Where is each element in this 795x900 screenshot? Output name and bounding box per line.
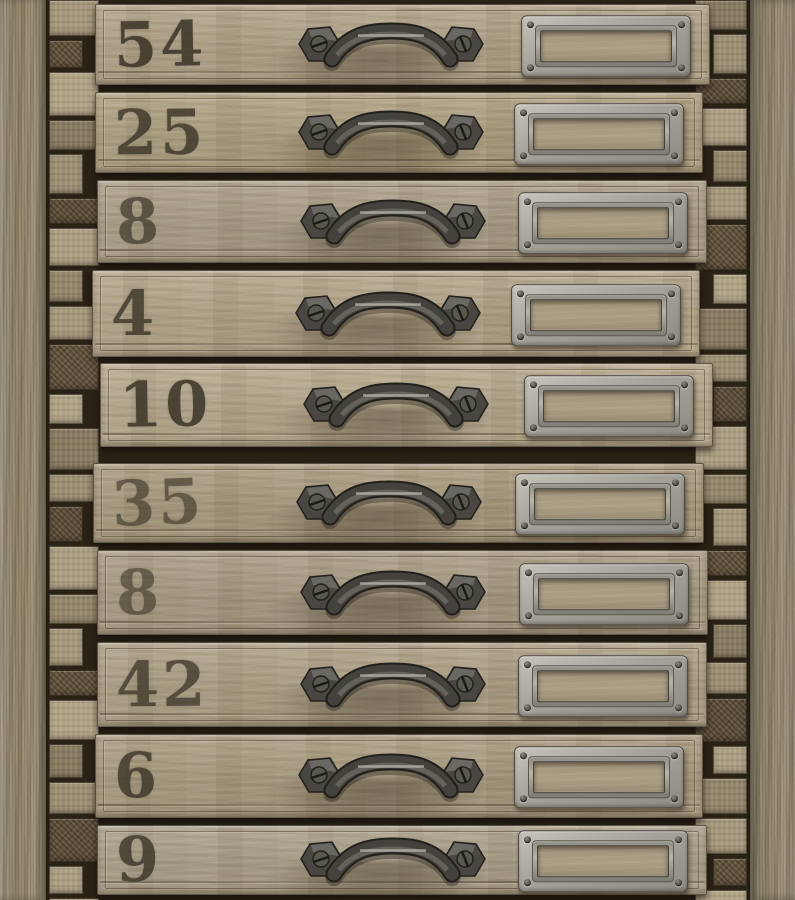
rivet-icon [681,381,688,388]
joint-block [713,150,747,182]
joint-block [49,40,83,68]
cabinet-frame-right [747,0,795,900]
rivet-icon [671,752,678,759]
joint-block [49,866,83,894]
dovetail-joints-left [49,0,99,900]
rivet-icon [524,198,531,205]
label-card-window [537,207,669,239]
joint-block [49,154,83,194]
rivet-icon [676,569,683,576]
joint-block [49,628,83,666]
joint-block [49,474,99,502]
label-holder-ridge [532,840,674,882]
drawer-front: 10 [100,363,713,447]
drawer-number: 25 [114,101,207,164]
drawer-pull-handle-icon [296,106,486,160]
joint-block [695,308,747,350]
rivet-icon [525,612,532,619]
rivet-icon [678,64,685,71]
label-card-window [540,30,672,62]
rivet-icon [521,479,528,486]
label-holder [518,192,688,254]
joint-block [49,744,83,778]
drawer-front: 54 [95,4,710,85]
drawer-front: 9 [97,825,707,895]
drawer-number: 10 [118,373,211,437]
label-card-window [537,845,669,877]
rivet-icon [672,479,679,486]
drawer-front: 6 [95,734,703,818]
label-card-window [538,578,670,610]
joint-block [49,428,99,470]
drawer-number: 6 [114,745,160,807]
rivet-icon [676,612,683,619]
rivet-icon [675,661,682,668]
rivet-icon [678,21,685,28]
drawer-front: 25 [95,92,703,173]
rivet-icon [530,424,537,431]
label-holder [515,473,685,535]
joint-block [49,546,99,590]
drawer-front: 4 [92,270,700,357]
rivet-icon [668,333,675,340]
drawer-pull-handle-icon [298,658,488,712]
rivet-icon [524,836,531,843]
rivet-icon [524,241,531,248]
joint-block [49,72,99,116]
joint-block [49,270,83,302]
joint-block [49,782,99,814]
drawer-pull-handle-icon [293,287,483,341]
label-holder [519,563,689,625]
drawer-number: 54 [113,13,206,77]
cabinet-frame-left [0,0,49,900]
rivet-icon [520,152,527,159]
rivet-icon [527,64,534,71]
label-card-window [533,118,665,150]
label-card-window [530,299,662,331]
drawer-number: 4 [111,283,157,345]
rivet-icon [527,21,534,28]
rivet-icon [520,109,527,116]
drawer-front: 8 [97,180,707,263]
rivet-icon [675,241,682,248]
rivet-icon [520,795,527,802]
rivet-icon [520,752,527,759]
rivet-icon [524,704,531,711]
label-holder [518,830,688,892]
rivet-icon [530,381,537,388]
rivet-icon [524,879,531,886]
joint-block [49,394,83,424]
label-card-window [543,390,675,422]
rivet-icon [668,290,675,297]
rivet-icon [517,290,524,297]
label-holder-ridge [528,756,670,798]
rivet-icon [671,152,678,159]
drawer-pull-handle-icon [296,18,486,72]
label-holder [524,375,694,437]
cabinet-photo: 54 [0,0,795,900]
label-card-window [533,761,665,793]
label-holder-ridge [529,483,671,525]
label-holder [521,15,691,77]
label-holder-ridge [535,25,677,67]
label-holder [514,103,684,165]
joint-block [49,0,99,36]
rivet-icon [525,569,532,576]
label-holder [518,655,688,717]
label-card-window [537,670,669,702]
label-holder [514,746,684,808]
rivet-icon [671,109,678,116]
rivet-icon [681,424,688,431]
joint-block [713,34,747,74]
rivet-icon [671,795,678,802]
rivet-icon [672,522,679,529]
label-holder-ridge [538,385,680,427]
drawer-number: 35 [111,470,205,535]
joint-block [49,198,99,224]
joint-block [713,624,747,658]
label-holder-ridge [525,294,667,336]
label-holder [511,284,681,346]
drawer-pull-handle-icon [298,833,488,887]
rivet-icon [524,661,531,668]
drawer-pull-handle-icon [294,476,484,530]
joint-block [49,670,99,696]
rivet-icon [517,333,524,340]
joint-block [713,386,747,422]
label-holder-ridge [528,113,670,155]
drawer-number: 9 [115,829,162,892]
label-holder-ridge [533,573,675,615]
joint-block [49,700,99,740]
joint-block [713,858,747,886]
drawer-pull-handle-icon [301,378,491,432]
drawer-pull-handle-icon [298,566,488,620]
joint-block [713,274,747,304]
drawer-pull-handle-icon [298,195,488,249]
drawer-pull-handle-icon [296,749,486,803]
rivet-icon [675,879,682,886]
drawer-front: 35 [93,463,704,543]
drawer-number: 42 [116,653,209,716]
rivet-icon [675,836,682,843]
joint-block [49,120,99,150]
drawer-front: 8 [97,550,708,635]
rivet-icon [521,522,528,529]
rivet-icon [675,704,682,711]
joint-block [713,508,747,546]
joint-block [49,594,99,624]
drawer-front: 42 [97,642,707,727]
label-card-window [534,488,666,520]
joint-block [713,746,747,774]
label-holder-ridge [532,665,674,707]
drawer-number: 8 [115,561,162,624]
rivet-icon [675,198,682,205]
drawer-number: 8 [115,190,163,253]
joint-block [49,818,99,862]
joint-block [49,228,99,266]
joint-block [49,506,83,542]
label-holder-ridge [532,202,674,244]
